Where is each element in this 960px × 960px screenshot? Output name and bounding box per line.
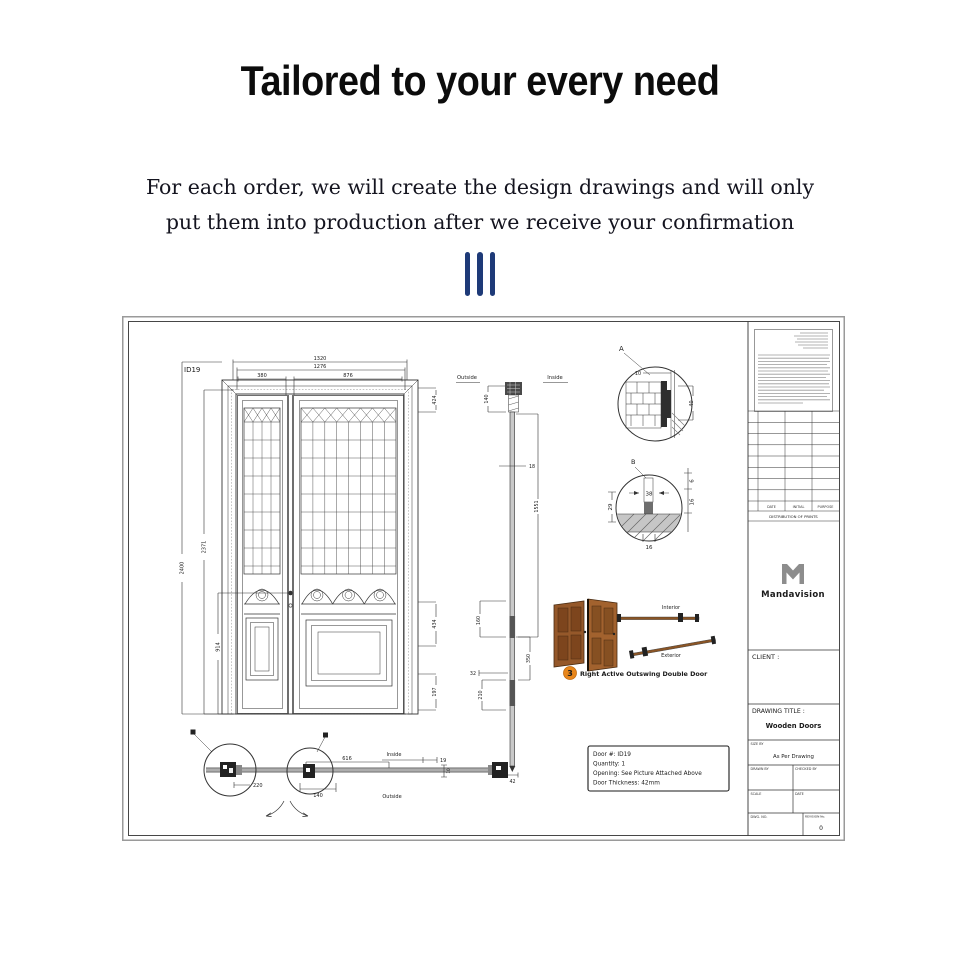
date-label: DATE xyxy=(795,792,804,796)
sheet-border xyxy=(123,317,845,841)
revision-no-label: REVISION No. xyxy=(805,815,825,819)
dim-frame-height: 2371 xyxy=(202,541,208,554)
detail-b-dim-29: 29 xyxy=(608,503,614,510)
technical-drawing-sheet: ID19 xyxy=(122,316,845,841)
subtitle-line1: For each order, we will create the desig… xyxy=(0,170,960,205)
dim-right-leaf: 876 xyxy=(343,373,353,379)
section-outside-label: Outside xyxy=(457,375,477,381)
rev-header-initial: INITIAL xyxy=(793,505,805,509)
plan-dim-616: 616 xyxy=(342,756,352,762)
info-door-number: Door #: ID19 xyxy=(593,752,631,758)
plan-dim-10: 10 xyxy=(446,768,451,774)
door-info-box: Door #: ID19 Quantity: 1 Opening: See Pi… xyxy=(588,746,729,791)
dim-1551: 1551 xyxy=(534,500,540,512)
info-quantity: Quantity: 1 xyxy=(593,762,625,768)
badge-number: 3 xyxy=(567,669,573,678)
exterior-label: Exterior xyxy=(661,653,682,659)
distribution-label: DISTRIBUTION OF PRINTS xyxy=(769,514,818,519)
scale-label: SCALE xyxy=(751,792,762,796)
dim-handle-height: 914 xyxy=(216,642,222,652)
plan-outside-label: Outside xyxy=(382,794,401,800)
plan-dim-140: 140 xyxy=(313,793,323,799)
dim-frame-width: 1276 xyxy=(314,364,327,370)
section-inside-label: Inside xyxy=(547,375,562,381)
info-opening: Opening: See Picture Attached Above xyxy=(593,771,702,777)
detail-b-dim-6: 6 xyxy=(690,479,696,483)
detail-b-dim-16-side: 16 xyxy=(690,498,696,505)
plan-dim-19: 19 xyxy=(440,758,446,764)
dim-197: 197 xyxy=(432,687,438,696)
dim-overall-width: 1320 xyxy=(314,356,327,362)
detail-b-label: B xyxy=(631,458,635,466)
drawing-title-value: Wooden Doors xyxy=(766,722,822,730)
dim-32: 32 xyxy=(470,671,476,677)
dim-434: 434 xyxy=(432,619,438,628)
drawing-title-label: DRAWING TITLE : xyxy=(752,708,805,715)
dim-210: 210 xyxy=(478,690,484,699)
divider-bars xyxy=(0,252,960,296)
detail-a-dim-10: 10 xyxy=(635,371,641,377)
swing-type-label: Right Active Outswing Double Door xyxy=(580,670,708,678)
detail-a-label: A xyxy=(619,345,624,353)
detail-b-dim-16-bottom: 16 xyxy=(646,545,653,551)
plan-dim-220: 220 xyxy=(253,783,263,789)
divider-bar xyxy=(477,252,483,296)
size-label: SIZE BY xyxy=(751,742,765,746)
interior-label: Interior xyxy=(662,605,681,611)
rev-header-purpose: PURPOSE xyxy=(818,505,834,509)
rev-header-date: DATE xyxy=(767,505,776,509)
dim-42: 42 xyxy=(509,779,515,785)
dim-overall-height: 2400 xyxy=(180,562,186,575)
detail-a-dim-40: 40 xyxy=(689,400,695,406)
dim-left-leaf: 380 xyxy=(257,373,267,379)
brand-name: Mandavision xyxy=(761,590,825,600)
size-value: As Per Drawing xyxy=(773,754,814,760)
dim-18: 18 xyxy=(529,464,535,470)
dim-424: 424 xyxy=(432,395,438,404)
dim-160: 160 xyxy=(476,616,482,625)
client-label: CLIENT : xyxy=(752,653,779,661)
page-title: Tailored to your every need xyxy=(48,57,912,105)
checked-by-label: CHECKED BY xyxy=(795,767,818,771)
divider-bar xyxy=(490,252,496,296)
subtitle-line2: put them into production after we receiv… xyxy=(0,205,960,240)
subtitle: For each order, we will create the desig… xyxy=(0,170,960,240)
cad-drawing: ID19 xyxy=(122,316,845,841)
dwg-no-label: DWG. NO. xyxy=(751,815,768,819)
divider-bar xyxy=(465,252,471,296)
dim-350: 350 xyxy=(526,654,532,663)
info-thickness: Door Thickness: 42mm xyxy=(593,781,660,787)
revision-no-value: 0 xyxy=(819,825,823,832)
drawn-by-label: DRAWN BY xyxy=(751,767,770,771)
detail-b-dim-38: 38 xyxy=(646,492,653,498)
dim-140: 140 xyxy=(484,394,490,403)
door-slab-section xyxy=(510,412,515,766)
elevation-id-label: ID19 xyxy=(184,366,200,374)
plan-inside-label: Inside xyxy=(387,752,402,758)
promo-section: Tailored to your every need For each ord… xyxy=(0,0,960,960)
